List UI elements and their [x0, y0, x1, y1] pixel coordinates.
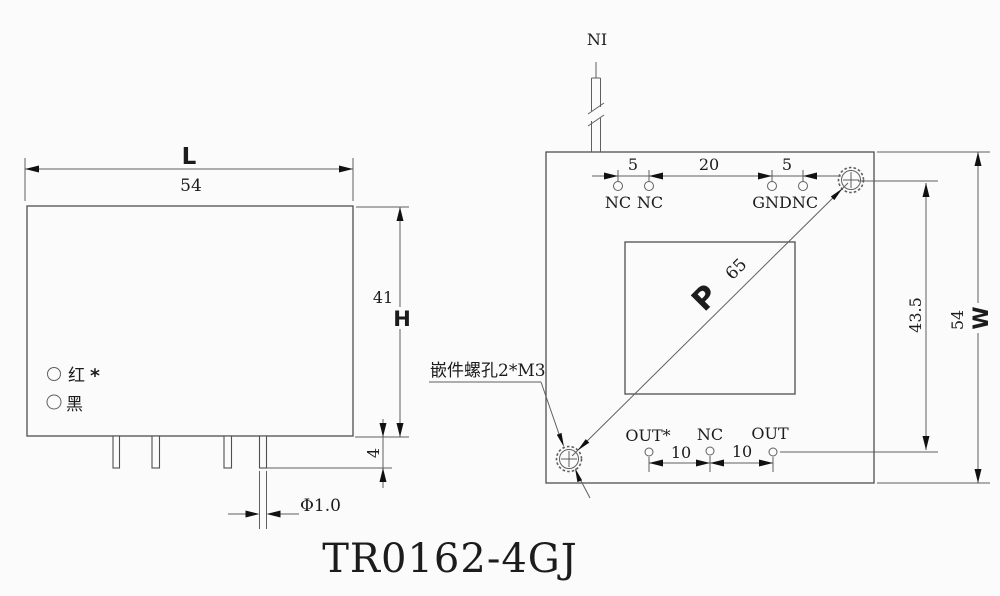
ni-tag-pin: [588, 62, 604, 152]
width-letter-label: W: [969, 306, 993, 329]
black-lead-circle: [47, 395, 61, 409]
drawing-title: TR0162-4GJ: [322, 536, 578, 582]
screw-note-leader: [429, 382, 590, 498]
dim-top-2: 20: [699, 155, 719, 174]
top-view: NI 5 20 5 NC NC GND NC OUT* NC OUT 10 10…: [429, 30, 993, 498]
pin-label-gnd: GND: [752, 193, 792, 212]
red-lead-asterisk: *: [90, 365, 100, 387]
pin-diameter-label: Φ1.0: [300, 496, 341, 516]
dim-screw-diagonal: [572, 183, 848, 456]
side-view-pins: [113, 436, 267, 468]
inner-width-label: 43.5: [906, 297, 925, 333]
dim-bottom-1: 10: [671, 443, 691, 462]
dim-pin-diameter: [228, 471, 299, 529]
dim-top-3: 5: [782, 155, 792, 174]
ni-tag-label: NI: [587, 30, 607, 49]
black-lead-label: 黑: [66, 395, 83, 415]
dim-bottom-pitch: [649, 460, 773, 467]
pin-label-out: OUT: [751, 424, 789, 443]
pin-label-nc1: NC: [605, 193, 631, 212]
width-value-label: 54: [948, 310, 967, 330]
length-letter-label: L: [182, 144, 197, 170]
pin-label-nc2: NC: [637, 193, 663, 212]
side-view: L 54 41 H 4 Φ1.0 红 * 黑: [25, 144, 411, 529]
diag-letter-label: P: [685, 278, 725, 318]
engineering-drawing: L 54 41 H 4 Φ1.0 红 * 黑: [0, 0, 1000, 596]
screw-note-label: 嵌件螺孔2*M3: [430, 361, 546, 381]
height-value-label: 41: [373, 288, 393, 307]
pin-length-label: 4: [364, 448, 383, 458]
height-letter-label: H: [393, 307, 411, 331]
length-value-label: 54: [180, 176, 202, 196]
pin-label-out-star: OUT*: [625, 426, 670, 445]
pin-label-nc4: NC: [697, 425, 723, 444]
pin-label-nc3: NC: [792, 193, 818, 212]
red-lead-label: 红: [68, 366, 85, 386]
dim-top-1: 5: [628, 155, 638, 174]
dim-bottom-2: 10: [732, 442, 752, 461]
red-lead-circle: [48, 368, 61, 381]
diag-value-label: 65: [722, 255, 751, 284]
bottom-pin-row: [645, 447, 777, 472]
